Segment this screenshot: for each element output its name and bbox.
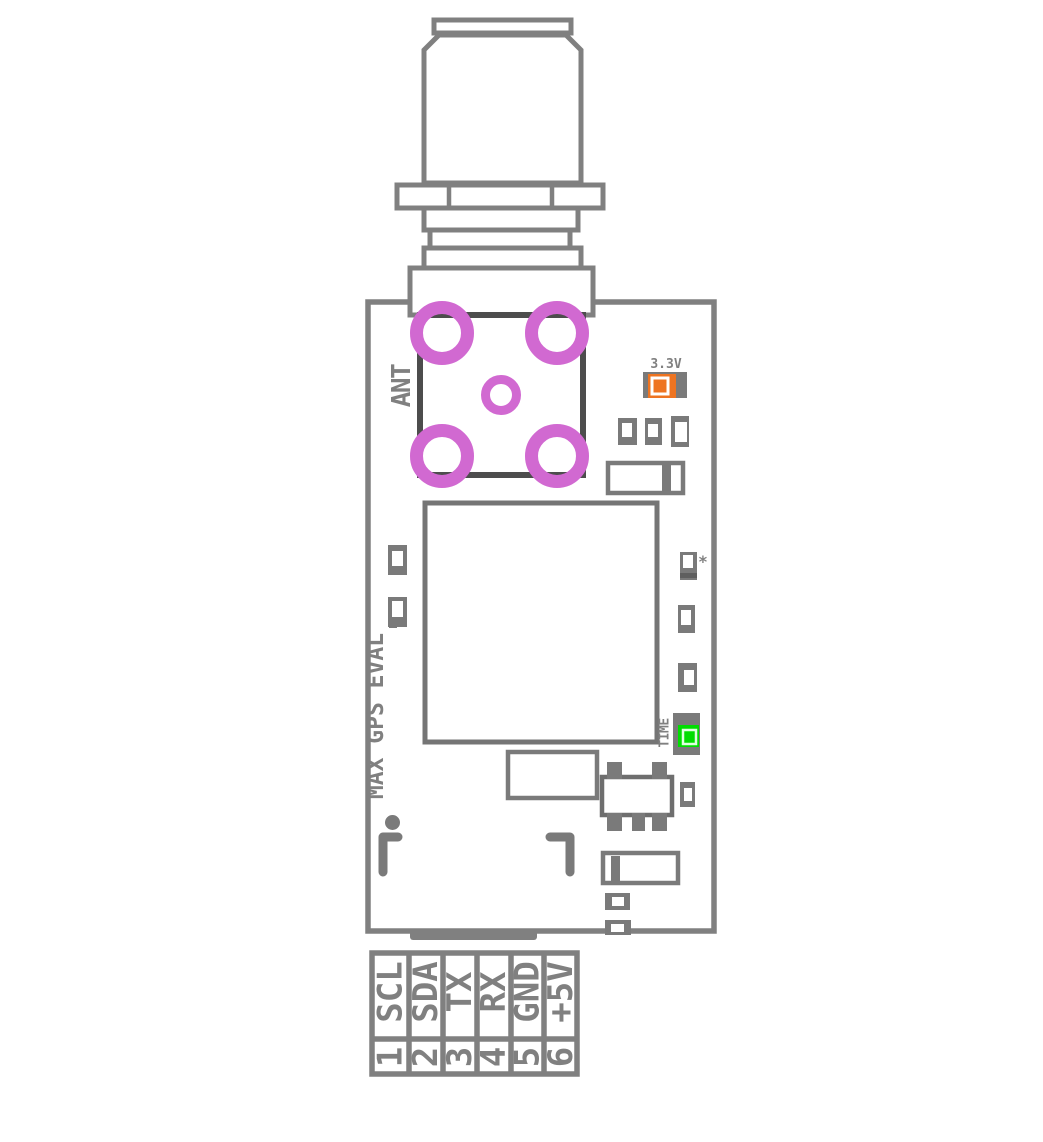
resistor-window	[681, 610, 691, 625]
sma-connector-cap	[434, 20, 571, 33]
sma-connector-nut	[397, 185, 603, 208]
time-led-label: TIME	[658, 718, 673, 747]
resistor-window	[622, 423, 632, 437]
resistor-window	[684, 670, 694, 685]
resistor-window	[392, 601, 403, 617]
gps-module-ic	[425, 503, 657, 742]
solder-pad-window	[611, 924, 624, 932]
antenna-label: ANT	[387, 364, 417, 407]
header-connector-tab	[410, 930, 537, 940]
solder-pad-window	[612, 897, 624, 906]
regulator-pin	[607, 762, 622, 779]
crystal-oscillator	[508, 752, 597, 798]
capacitor	[608, 463, 683, 493]
pin-label-1: SCL	[371, 961, 411, 1022]
regulator-pin	[632, 813, 645, 831]
regulator-pin	[652, 762, 667, 779]
resistor-pad	[389, 621, 397, 628]
diagram-canvas: ANT 3.3V * TIME	[0, 0, 1043, 1142]
regulator-pin	[652, 813, 667, 831]
regulator-pin	[607, 813, 622, 831]
power-led	[643, 372, 687, 398]
silkscreen-dot	[385, 815, 400, 830]
pin-numbers: 1 2 3 4 5 6	[371, 1047, 582, 1067]
regulator-body	[602, 777, 672, 815]
sma-thread-step-1	[424, 208, 578, 230]
pin-number-1: 1	[371, 1047, 411, 1067]
capacitor-polarity-band	[662, 465, 671, 491]
pin-label-6: +5V	[541, 961, 581, 1022]
sma-connector	[397, 20, 603, 315]
sma-thread-step-2	[430, 230, 570, 248]
capacitor-polarity-band	[611, 856, 620, 881]
component-polarity-mark: *	[698, 552, 708, 571]
sma-connector-body	[424, 35, 581, 183]
pin-number-6: 6	[541, 1047, 581, 1067]
resistor-band	[680, 573, 697, 578]
resistor-window	[684, 788, 692, 801]
resistor-window	[675, 422, 687, 442]
board-title: MAX GPS EVAL	[363, 633, 389, 799]
resistor-window	[683, 555, 693, 568]
power-led-label: 3.3V	[650, 357, 681, 372]
sma-thread-step-3	[424, 248, 581, 268]
resistor-window	[648, 424, 658, 437]
resistor-window	[392, 551, 403, 566]
gps-eval-board-diagram: ANT 3.3V * TIME	[0, 0, 1043, 1142]
time-led	[673, 713, 700, 755]
